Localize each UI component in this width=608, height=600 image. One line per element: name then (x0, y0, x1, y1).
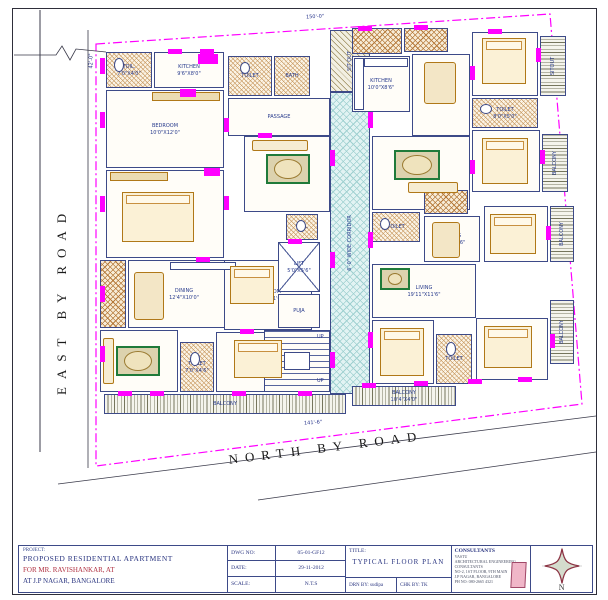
project-client: FOR MR. RAVISHANKAR, AT (23, 566, 223, 574)
opening-marker (204, 168, 220, 176)
opening-marker (536, 48, 541, 62)
wc-icon (190, 352, 200, 366)
opening-marker (100, 346, 105, 362)
rug-icon (266, 154, 310, 184)
table-icon (134, 272, 164, 320)
dimension-label: UP (317, 378, 324, 384)
opening-marker (414, 25, 428, 30)
opening-marker (358, 26, 372, 31)
opening-marker (232, 391, 246, 396)
opening-marker (546, 226, 551, 240)
opening-marker (540, 150, 545, 164)
opening-marker (298, 391, 312, 396)
room-toil: TOIL.7'0"X4'0" (106, 52, 152, 88)
scale-label: SCALE: (228, 577, 276, 592)
room-balcony: BALCONY (550, 206, 574, 262)
opening-marker (330, 150, 335, 166)
opening-marker (468, 379, 482, 384)
floor-plan-sheet: { "title_block": { "project_label": "PRO… (0, 0, 608, 600)
dimension-label: 150'-0" (306, 14, 324, 21)
counter-icon (170, 262, 236, 270)
title-label: TITLE: (349, 548, 366, 554)
bed-icon (490, 214, 536, 254)
wc-icon (446, 342, 456, 356)
drawing-title-box: TITLE: TYPICAL FLOOR PLAN DRN BY: sudipa… (346, 546, 452, 592)
counter-icon (354, 58, 364, 110)
bed-icon (482, 38, 526, 84)
bed-icon (380, 328, 424, 376)
opening-marker (368, 232, 373, 248)
bed-icon (234, 340, 282, 378)
room-lift: LIFT5'0"X5'6" (278, 242, 320, 292)
rug-icon (380, 268, 410, 290)
opening-marker (488, 29, 502, 34)
bed-icon (482, 138, 528, 184)
opening-marker (368, 112, 373, 128)
opening-marker (100, 196, 105, 212)
consultant-logo-icon (511, 562, 527, 588)
wc-icon (296, 220, 306, 232)
opening-marker (240, 329, 254, 334)
table-icon (424, 62, 456, 104)
opening-marker (224, 196, 229, 210)
drawing-title: TYPICAL FLOOR PLAN (346, 558, 451, 566)
landing-icon (284, 352, 310, 370)
wc-icon (240, 62, 250, 74)
opening-marker (196, 257, 210, 262)
project-name: PROPOSED RESIDENTIAL APARTMENT (23, 554, 223, 563)
room-toilet: TOILET (228, 56, 272, 96)
opening-marker (550, 334, 555, 348)
room-toilet: TOILET (436, 334, 472, 384)
rug-icon (116, 346, 160, 376)
opening-marker (330, 252, 335, 268)
project-info: PROJECT: PROPOSED RESIDENTIAL APARTMENT … (19, 546, 228, 592)
north-label: N (559, 583, 565, 592)
opening-marker (470, 66, 475, 80)
scale-value: N.T.S (276, 577, 346, 592)
room-bedroom: BEDROOM10'0"X12'0" (106, 90, 224, 168)
opening-marker (258, 133, 272, 138)
room-balcony: BALCONY (542, 134, 568, 192)
room-area (424, 190, 468, 214)
drawn-by: DRN BY: sudipa (346, 578, 397, 592)
floor-plan: TOIL.7'0"X4'0"KITCHEN9'6"X8'0"BEDROOM10'… (0, 0, 608, 600)
compass-box: N (531, 546, 592, 592)
wc-icon (480, 104, 492, 114)
opening-marker (330, 352, 335, 368)
opening-marker (224, 118, 229, 132)
room-balcony: BALCONY (550, 300, 574, 364)
room-6-0-wide-corridor: 6'-0" WIDE CORRIDOR (330, 92, 370, 394)
ward-icon (110, 172, 168, 181)
opening-marker (518, 377, 532, 382)
room-toilet: TOILET (372, 212, 420, 242)
opening-marker (118, 391, 132, 396)
opening-marker (180, 89, 196, 97)
room-bath: BATH (274, 56, 310, 96)
table-icon (432, 222, 460, 258)
date-value: 29-11-2012 (276, 561, 346, 576)
opening-marker (198, 54, 218, 64)
dimension-label: UP (317, 334, 324, 340)
bed-icon (230, 266, 274, 304)
wc-icon (380, 218, 390, 230)
dwg-no-value: 05-01-GF12 (276, 546, 346, 561)
opening-marker (368, 332, 373, 348)
checked-by: CHK BY: TK (397, 578, 451, 592)
room-area (352, 28, 402, 54)
dimension-label: 141'-6" (304, 419, 323, 426)
opening-marker (100, 58, 105, 74)
opening-marker (414, 381, 428, 386)
rug-icon (394, 150, 440, 180)
room-area (404, 28, 448, 52)
room-toilet: TOILET7'0"X4'6" (180, 342, 214, 392)
opening-marker (150, 391, 164, 396)
opening-marker (288, 239, 302, 244)
bed-icon (484, 326, 532, 368)
north-arrow-icon (539, 546, 585, 586)
room-sitout: SITOUT (540, 36, 566, 96)
opening-marker (100, 286, 105, 302)
sofa-icon (252, 140, 308, 151)
title-block: PROJECT: PROPOSED RESIDENTIAL APARTMENT … (18, 545, 593, 593)
room-puja: PUJA (278, 294, 320, 328)
opening-marker (470, 160, 475, 174)
wc-icon (114, 58, 124, 72)
opening-marker (100, 112, 105, 128)
counter-icon (364, 58, 408, 67)
room-passage: PASSAGE (228, 98, 330, 136)
room-balcony: BALCONY (104, 394, 346, 414)
east-road-label: EAST BY ROAD (54, 160, 70, 395)
room-balcony: BALCONY10'4"X4'0" (352, 386, 456, 406)
bed-icon (122, 192, 194, 242)
byline-row: DRN BY: sudipa CHK BY: TK (346, 577, 451, 592)
project-label: PROJECT: (23, 548, 223, 553)
date-label: DATE: (228, 561, 276, 576)
dimension-label: 42'-0" (89, 53, 95, 68)
project-location: AT J.P NAGAR, BANGALORE (23, 577, 223, 585)
drawing-meta: DWG NO: 05-01-GF12 DATE: 29-11-2012 SCAL… (228, 546, 346, 592)
consultants-box: CONSULTANTS VASTU ARCHITECTURAL ENGINEER… (452, 546, 532, 592)
opening-marker (168, 49, 182, 54)
sofa-icon (408, 182, 458, 193)
dwg-no-label: DWG NO: (228, 546, 276, 561)
opening-marker (362, 383, 376, 388)
